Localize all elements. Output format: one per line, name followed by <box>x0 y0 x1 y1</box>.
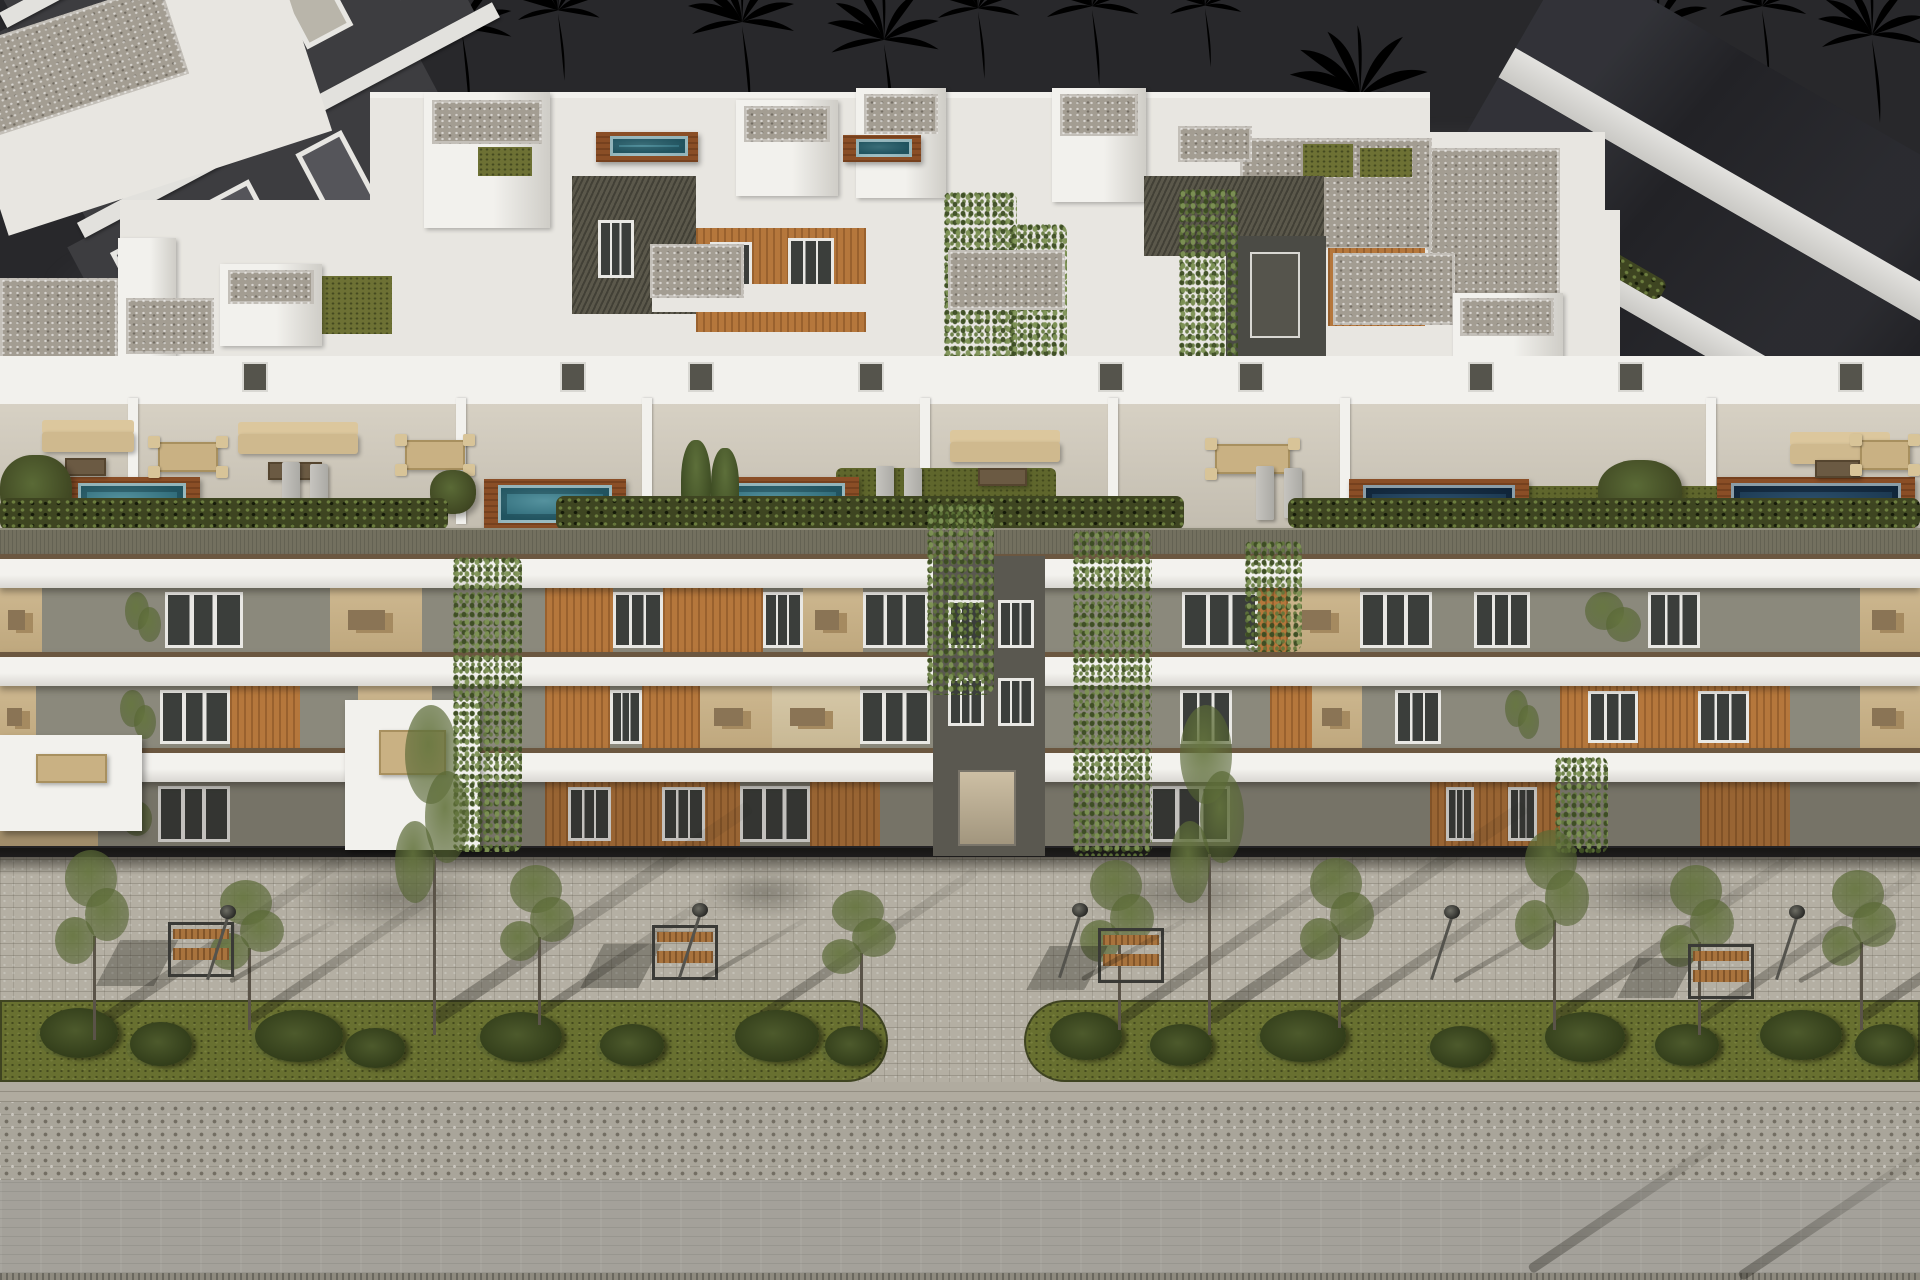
chair <box>148 466 160 478</box>
architectural-render-scene <box>0 0 1920 1280</box>
cascading-vine <box>1244 540 1302 652</box>
furniture <box>1872 708 1896 727</box>
wood-facade-panel <box>545 588 613 652</box>
chair <box>1288 438 1300 450</box>
shrub <box>825 1026 880 1066</box>
window <box>1474 592 1530 648</box>
foliage <box>55 917 95 965</box>
lamp-head <box>1444 905 1460 919</box>
tree-trunk <box>93 936 96 1041</box>
window <box>160 690 230 744</box>
textured-paver-band <box>0 1102 1920 1180</box>
interior-scene <box>330 588 422 652</box>
window <box>1648 592 1700 648</box>
bench <box>1688 944 1754 1002</box>
glass-door <box>1618 362 1644 392</box>
sofa-seat <box>42 432 134 452</box>
shrub <box>1430 1026 1492 1068</box>
tree-trunk <box>1338 935 1341 1029</box>
street-tree <box>1822 870 1902 1030</box>
furniture <box>714 708 743 727</box>
window <box>613 592 663 648</box>
glass-door <box>1250 252 1300 338</box>
interior-scene <box>700 686 772 748</box>
interior-scene <box>1860 588 1920 652</box>
glass-door <box>560 362 586 392</box>
foliage <box>134 705 156 739</box>
interior-scene <box>0 588 42 652</box>
street-lamp <box>1072 903 1112 1003</box>
gravel-roof <box>126 298 214 354</box>
wood-facade-panel <box>642 686 700 748</box>
gravel-roof <box>948 250 1065 310</box>
interior-scene <box>1860 686 1920 748</box>
furniture <box>7 708 21 727</box>
gravel-roof <box>1460 298 1554 336</box>
palm-tree <box>930 0 1026 82</box>
street-tree <box>1515 830 1595 1030</box>
edge-hedge-strip <box>556 496 1184 530</box>
balcony-plant <box>1501 686 1543 748</box>
window <box>860 690 930 744</box>
furniture <box>815 610 839 629</box>
palm-tree <box>1163 0 1247 70</box>
furniture <box>1302 610 1331 629</box>
bench-back <box>1693 951 1749 961</box>
lamp-head <box>1789 905 1805 919</box>
street-tree <box>500 865 580 1025</box>
chair <box>148 436 160 448</box>
dining-table <box>405 440 465 470</box>
foliage <box>1300 918 1340 961</box>
gravel-roof <box>864 94 938 134</box>
gravel-roof <box>432 100 542 144</box>
foliage <box>822 939 862 974</box>
shrub <box>1855 1024 1915 1066</box>
street-lamp <box>692 903 732 1003</box>
window <box>165 592 243 648</box>
green-roof <box>1360 148 1412 177</box>
foliage <box>138 607 161 642</box>
green-roof <box>478 147 532 176</box>
chair <box>1850 434 1862 446</box>
tree-trunk <box>1553 920 1556 1030</box>
glass-door <box>1098 362 1124 392</box>
chair <box>1205 438 1217 450</box>
dining-set <box>1850 428 1920 486</box>
street-tree <box>1300 858 1380 1028</box>
edge-hedge-strip <box>1288 498 1920 528</box>
street-tree <box>822 890 902 1030</box>
entrance-door <box>958 770 1016 846</box>
edge-hedge-strip <box>0 498 448 530</box>
glass-door <box>1468 362 1494 392</box>
balcony-plant <box>120 588 165 652</box>
tree-trunk <box>433 854 436 1036</box>
bench-seat <box>1693 970 1749 982</box>
glass-door <box>858 362 884 392</box>
street-tree <box>1170 705 1250 1035</box>
furniture <box>790 708 825 727</box>
window <box>598 220 634 278</box>
furniture <box>8 610 25 629</box>
wood-facade-panel <box>663 588 763 652</box>
shrub <box>130 1022 192 1066</box>
window <box>1588 691 1639 743</box>
protruding-balcony <box>0 735 142 831</box>
foliage <box>500 921 540 961</box>
glass-door <box>1838 362 1864 392</box>
dining-set <box>148 430 228 488</box>
coffee-table <box>65 458 106 476</box>
chair <box>1908 464 1920 476</box>
furniture <box>1872 610 1896 629</box>
chair <box>395 464 407 476</box>
terrace-back-parapet <box>0 396 1920 404</box>
chair <box>216 436 228 448</box>
glass-door <box>688 362 714 392</box>
tree-trunk <box>1860 942 1863 1030</box>
core-window <box>998 678 1034 726</box>
glass-door <box>1238 362 1264 392</box>
palm-tree <box>1038 0 1146 89</box>
chair <box>1205 468 1217 480</box>
street-lamp <box>1444 905 1484 1005</box>
interior-scene <box>772 686 860 748</box>
chair <box>216 466 228 478</box>
core-window <box>998 600 1034 648</box>
sofa-seat <box>950 442 1060 462</box>
gravel-roof <box>650 244 744 298</box>
furniture <box>348 610 385 629</box>
green-roof <box>1303 144 1353 177</box>
interior-scene <box>1312 686 1362 748</box>
wood-facade-panel <box>230 686 300 748</box>
street-lamp <box>1789 905 1829 1005</box>
foliage <box>395 821 435 904</box>
wood-facade-panel <box>1270 686 1312 748</box>
foliage <box>1606 607 1641 642</box>
balcony-plant <box>1578 588 1648 652</box>
shrub <box>735 1010 819 1062</box>
street-lamp <box>220 905 260 1005</box>
rooftop-pool <box>856 139 912 157</box>
balcony-table <box>36 754 107 783</box>
tree-trunk <box>538 937 541 1025</box>
chair <box>1850 464 1862 476</box>
coffee-table <box>978 468 1028 486</box>
window <box>610 690 642 744</box>
street-tree <box>395 705 475 1035</box>
road-edge-band <box>0 1273 1920 1280</box>
rooftop-pool <box>610 136 688 156</box>
chair <box>1908 434 1920 446</box>
window <box>1360 592 1432 648</box>
gravel-roof <box>228 270 314 304</box>
ivy-wall <box>1178 188 1238 384</box>
foliage <box>1518 705 1539 739</box>
foliage <box>1170 821 1210 904</box>
gravel-roof <box>1333 253 1455 325</box>
lamp-head <box>220 905 236 919</box>
cascading-vine <box>926 503 994 695</box>
lamp-head <box>1072 903 1088 917</box>
glass-door <box>242 362 268 392</box>
chair <box>463 434 475 446</box>
window <box>1395 690 1441 744</box>
cascading-vine <box>1072 530 1152 856</box>
gravel-roof <box>1060 94 1138 136</box>
tree-trunk <box>1208 854 1211 1036</box>
window <box>1698 691 1749 743</box>
wood-facade-panel <box>545 686 610 748</box>
lamp-head <box>692 903 708 917</box>
paver-band <box>0 1082 1920 1102</box>
window <box>763 592 803 648</box>
sofa-seat <box>238 434 358 454</box>
furniture <box>1322 708 1342 727</box>
shrub <box>600 1024 664 1066</box>
outdoor-sofa-set <box>950 430 1060 490</box>
tree-trunk <box>860 953 863 1030</box>
window <box>863 592 928 648</box>
chair <box>395 434 407 446</box>
gravel-roof <box>1178 126 1252 162</box>
lounger <box>1256 466 1274 520</box>
dining-table <box>158 442 218 472</box>
gravel-roof <box>744 106 830 142</box>
dining-table <box>1860 440 1910 470</box>
interior-scene <box>803 588 863 652</box>
